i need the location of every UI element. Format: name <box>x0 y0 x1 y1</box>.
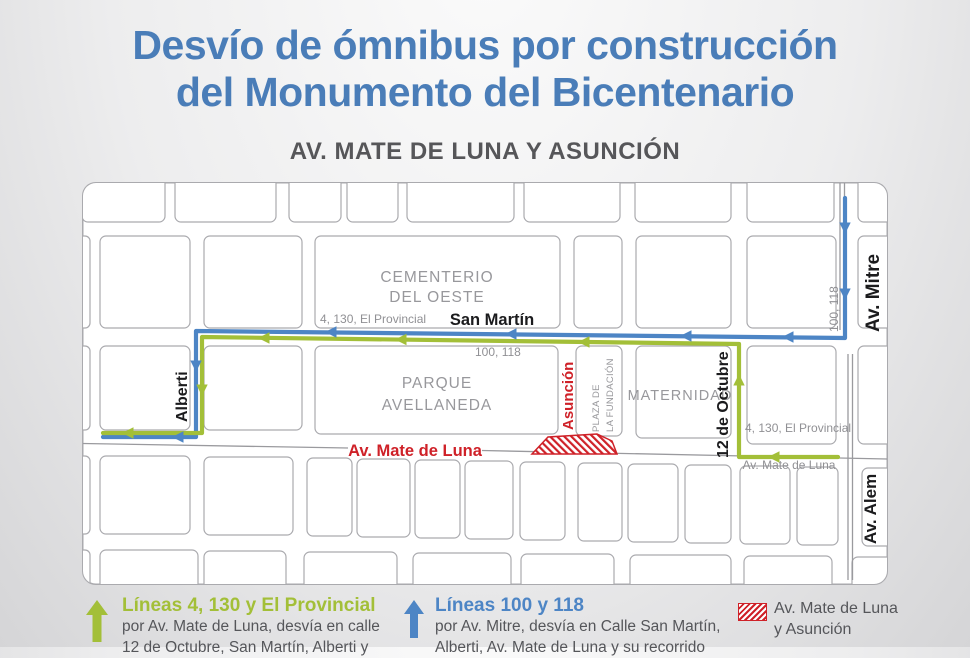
infographic-page: { "header": { "title_line1": "Desvío de … <box>0 0 970 647</box>
city-block <box>347 182 398 222</box>
city-block <box>520 462 565 540</box>
legend-blue-line1: por Av. Mitre, desvía en Calle San Martí… <box>435 617 735 638</box>
hatched-zone-swatch-icon <box>738 603 767 621</box>
city-block <box>407 182 514 222</box>
city-block <box>204 551 286 585</box>
blue-route-label-mitre: 100, 118 <box>827 286 841 332</box>
legend: Líneas 4, 130 y El Provincial por Av. Ma… <box>0 595 970 647</box>
city-block <box>82 236 90 328</box>
city-block <box>747 236 836 328</box>
city-block <box>744 556 832 585</box>
city-block <box>574 236 622 328</box>
city-block <box>797 467 838 545</box>
green-route-label-12-octubre: 4, 130, El Provincial <box>745 421 851 435</box>
city-block <box>82 182 165 222</box>
city-block <box>740 466 790 544</box>
blue-route-label-san-martin: 100, 118 <box>475 345 521 359</box>
cementerio-label-line1: CEMENTERIO <box>380 269 493 286</box>
parque-label-line1: PARQUE <box>402 375 472 392</box>
city-block <box>415 460 460 538</box>
legend-red-line1: Av. Mate de Luna <box>774 598 934 619</box>
detour-map: CEMENTERIO DEL OESTE PARQUE AVELLANEDA M… <box>82 182 888 585</box>
green-route-label-san-martin: 4, 130, El Provincial <box>320 312 426 326</box>
san-martin-street-label: San Martín <box>450 311 534 329</box>
city-block <box>413 553 511 585</box>
city-block <box>175 182 276 222</box>
city-block <box>465 461 513 539</box>
city-block <box>100 236 190 328</box>
legend-green-line1: por Av. Mate de Luna, desvía en calle <box>122 617 402 638</box>
asuncion-street-label: Asunción <box>560 362 577 430</box>
legend-green-line2: 12 de Octubre, San Martín, Alberti y <box>122 638 402 658</box>
plaza-label-line2: LA FUNDACIÓN <box>605 358 616 432</box>
legend-blue-line2: Alberti, Av. Mate de Luna y su recorrido <box>435 638 735 658</box>
legend-red-line2: y Asunción <box>774 619 934 640</box>
city-block <box>578 463 622 541</box>
alberti-street-label: Alberti <box>174 371 191 422</box>
plaza-label-line1: PLAZA DE <box>591 384 602 432</box>
city-block <box>628 464 678 542</box>
city-block <box>204 457 293 535</box>
city-block <box>204 236 302 328</box>
city-block <box>100 456 190 534</box>
page-subtitle: AV. MATE DE LUNA Y ASUNCIÓN <box>0 138 970 166</box>
city-block <box>630 555 731 585</box>
legend-blue-title: Líneas 100 y 118 <box>435 595 735 617</box>
city-block <box>747 182 834 222</box>
av-mate-de-luna-label: Av. Mate de Luna <box>348 442 483 460</box>
page-title: Desvío de ómnibus por construcción del M… <box>0 22 970 116</box>
city-block <box>635 182 731 222</box>
city-block <box>82 456 90 534</box>
city-block <box>304 552 397 585</box>
city-block <box>858 182 888 222</box>
av-mate-de-luna-small-label: Av. Mate de Luna <box>743 458 836 472</box>
av-mitre-street-label: Av. Mitre <box>863 254 884 332</box>
legend-green-title: Líneas 4, 130 y El Provincial <box>122 595 402 617</box>
city-block <box>289 182 341 222</box>
city-block <box>521 554 614 585</box>
city-block <box>100 550 198 585</box>
green-up-arrow-icon <box>86 600 108 642</box>
city-block <box>357 459 410 537</box>
city-block <box>82 346 90 430</box>
city-block <box>636 236 731 328</box>
city-block <box>524 182 620 222</box>
city-block <box>307 458 352 536</box>
av-alem-street-label: Av. Alem <box>861 474 880 544</box>
city-block <box>204 346 302 430</box>
city-block <box>858 346 888 444</box>
page-title-line2: del Monumento del Bicentenario <box>0 69 970 116</box>
page-title-line1: Desvío de ómnibus por construcción <box>0 22 970 69</box>
blue-up-arrow-icon <box>404 600 424 638</box>
cementerio-label-line2: DEL OESTE <box>389 289 484 306</box>
city-block <box>685 465 731 543</box>
parque-label-line2: AVELLANEDA <box>382 397 493 414</box>
map-canvas: CEMENTERIO DEL OESTE PARQUE AVELLANEDA M… <box>82 182 888 585</box>
doce-de-octubre-street-label: 12 de Octubre <box>715 351 732 458</box>
